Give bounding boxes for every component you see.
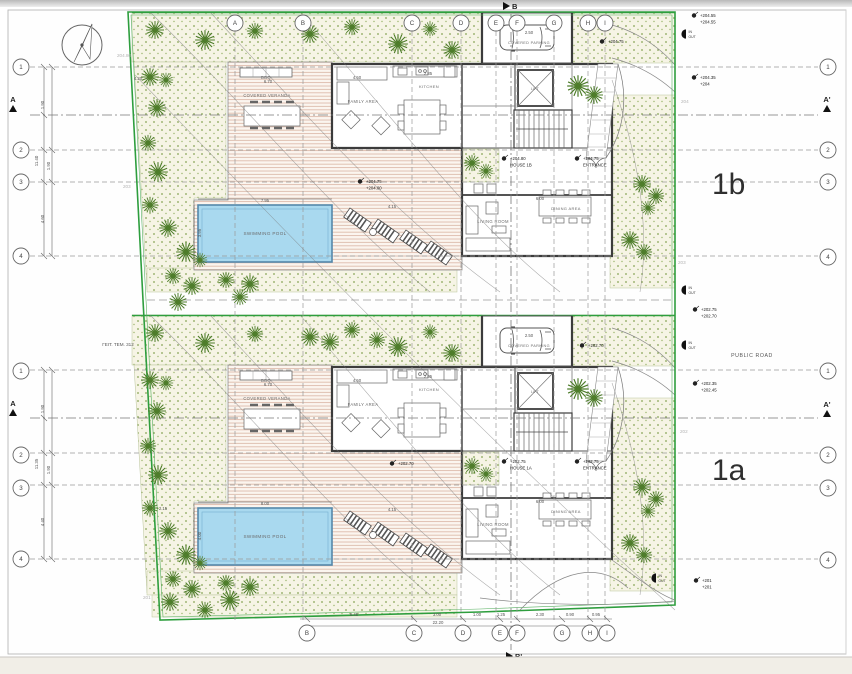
- dimension-text: 1.90: [46, 465, 51, 474]
- label-lift: LIFT: [531, 390, 539, 394]
- tree-icon: [140, 135, 156, 151]
- dimension-text: 4.60: [40, 214, 45, 223]
- level-text: +204.80: [510, 156, 526, 161]
- tree-icon: [197, 602, 213, 618]
- level-text: ENTRANCE: [583, 465, 607, 470]
- tree-icon: [621, 231, 639, 249]
- grid-bubble-label: 3: [826, 179, 830, 186]
- level-text: +204.75: [583, 156, 599, 161]
- svg-text:A': A': [823, 400, 830, 409]
- label-covered-veranda: COVERED VERANDA: [243, 93, 290, 98]
- contour-label: 201: [143, 595, 151, 600]
- grid-bubble: A: [227, 15, 243, 31]
- level-text: +204.75: [366, 179, 382, 184]
- dimension-text: 11.40: [34, 155, 39, 166]
- dimension-text: 2.50: [525, 333, 534, 338]
- dimension-text: 1.90: [40, 100, 45, 109]
- in-label: IN: [659, 574, 663, 578]
- tree-icon: [218, 272, 234, 288]
- dimension-text: 4.50: [353, 378, 362, 383]
- tree-icon: [176, 242, 196, 262]
- tree-icon: [443, 344, 461, 362]
- tree-icon: [301, 328, 319, 346]
- grid-bubble: E: [492, 625, 508, 641]
- tree-icon: [443, 41, 461, 59]
- grid-bubble-label: 1: [826, 368, 830, 375]
- dimension-text: 4.00: [197, 531, 202, 540]
- tree-icon: [140, 438, 156, 454]
- grid-bubble: I: [597, 15, 613, 31]
- grid-bubble-label: E: [498, 630, 502, 637]
- unit-1b-label: 1b: [712, 168, 745, 201]
- grid-bubble: 3: [13, 480, 29, 496]
- grid-bubble: 3: [820, 480, 836, 496]
- tree-icon: [641, 504, 655, 518]
- tree-icon: [165, 268, 181, 284]
- tree-icon: [195, 333, 215, 353]
- level-text: +202.70: [398, 461, 414, 466]
- tree-icon: [148, 162, 168, 182]
- level-text: ENTRANCE: [583, 162, 607, 167]
- in-label: IN: [689, 30, 693, 34]
- grid-bubble-label: 2: [19, 147, 23, 154]
- tree-icon: [159, 73, 173, 87]
- grid-bubble: H: [582, 625, 598, 641]
- grid-bubble-label: H: [586, 20, 590, 27]
- level-text: +204.75: [608, 39, 624, 44]
- label-covered-parking: COVERED PARKING: [508, 344, 550, 348]
- tree-icon: [423, 22, 437, 36]
- grid-bubble-label: 2: [19, 452, 23, 459]
- dimension-text: 4.50: [353, 75, 362, 80]
- neighbor-plot-label: ΓΕΙΤ. ΤΕΜ. 312: [102, 342, 134, 347]
- grid-bubble: D: [453, 15, 469, 31]
- tree-icon: [148, 465, 168, 485]
- tree-icon: [464, 155, 480, 171]
- tree-icon: [148, 99, 166, 117]
- dimension-text: 0.95: [592, 612, 601, 617]
- tree-icon: [633, 175, 651, 193]
- out-label: OUT: [689, 346, 696, 350]
- tree-icon: [585, 86, 603, 104]
- dimension-text: 4.20: [134, 76, 143, 81]
- dimension-text: 6.00: [536, 196, 545, 201]
- contour-label: 203: [678, 260, 686, 265]
- in-label: IN: [689, 341, 693, 345]
- tree-icon: [218, 575, 234, 591]
- grid-bubble-label: I: [604, 20, 606, 27]
- contour-label: 204.80: [117, 53, 131, 58]
- svg-text:B: B: [512, 2, 518, 11]
- tree-icon: [369, 332, 385, 348]
- grid-bubble-label: 3: [826, 485, 830, 492]
- tree-icon: [423, 325, 437, 339]
- grid-bubble-label: 4: [826, 557, 830, 564]
- level-text: +202.75: [510, 459, 526, 464]
- label-bbq: BBQ: [261, 378, 271, 383]
- dimension-text: 1.25: [497, 612, 506, 617]
- tree-icon: [344, 322, 360, 338]
- svg-text:A: A: [10, 95, 16, 104]
- tree-icon: [388, 337, 408, 357]
- tree-icon: [148, 402, 166, 420]
- in-label: IN: [689, 286, 693, 290]
- level-text: +201: [702, 578, 712, 583]
- grid-bubble-label: 2: [826, 147, 830, 154]
- grid-bubble: C: [406, 625, 422, 641]
- grid-bubble: 4: [820, 249, 836, 265]
- tree-icon: [193, 556, 207, 570]
- grid-bubble: 1: [13, 363, 29, 379]
- dimension-text: 2.85: [424, 71, 433, 76]
- tree-icon: [141, 68, 159, 86]
- grid-bubble: F: [509, 15, 525, 31]
- label-family-area: FAMILY AREA: [348, 99, 379, 104]
- dimension-text: 4.40: [40, 517, 45, 526]
- level-text: HOUSE 1B: [510, 162, 532, 167]
- grid-bubble-label: 1: [826, 64, 830, 71]
- grid-bubble: B: [295, 15, 311, 31]
- tree-icon: [220, 590, 240, 610]
- level-text: +202.75: [583, 459, 599, 464]
- tree-icon: [141, 371, 159, 389]
- grid-bubble: E: [488, 15, 504, 31]
- grid-bubble-label: I: [606, 630, 608, 637]
- grid-bubble-label: G: [560, 630, 565, 637]
- grid-bubble-label: 1: [19, 368, 23, 375]
- dimension-text: 3.00: [433, 612, 442, 617]
- grid-bubble: 2: [820, 447, 836, 463]
- grid-bubble: 1: [820, 59, 836, 75]
- tree-icon: [146, 21, 164, 39]
- label-covered-veranda: COVERED VERANDA: [243, 396, 290, 401]
- tree-icon: [633, 478, 651, 496]
- tree-icon: [479, 164, 493, 178]
- grid-bubble: 2: [13, 142, 29, 158]
- label-kitchen: KITCHEN: [419, 84, 439, 89]
- tree-icon: [176, 545, 196, 565]
- label-kitchen: KITCHEN: [419, 387, 439, 392]
- tree-icon: [585, 389, 603, 407]
- tree-icon: [159, 376, 173, 390]
- grid-bubble: 2: [13, 447, 29, 463]
- dimension-text: 0.90: [566, 612, 575, 617]
- window-bottom-strip: [0, 657, 852, 674]
- dimension-text: 2.30: [536, 612, 545, 617]
- grid-bubble: 1: [820, 363, 836, 379]
- level-text: HOUSE 1A: [510, 465, 532, 470]
- grid-bubble-label: 4: [826, 254, 830, 261]
- dimension-text: 2.15: [159, 506, 168, 511]
- grid-bubble: H: [580, 15, 596, 31]
- label-lift: LIFT: [531, 87, 539, 91]
- floor-plan-canvas: 1b 1a ΓΕΙΤ. ΤΕΜ. 312 PUBLIC ROAD A A' A …: [0, 0, 852, 674]
- level-text: +202.75: [701, 307, 717, 312]
- level-text: +202.70: [701, 313, 717, 318]
- level-text: +204.35: [700, 75, 716, 80]
- grid-bubble: 3: [13, 174, 29, 190]
- grid-bubble: 4: [820, 552, 836, 568]
- level-text: +204.55: [700, 13, 716, 18]
- label-family-area: FAMILY AREA: [348, 402, 379, 407]
- grid-bubble: C: [404, 15, 420, 31]
- grid-bubble-label: D: [459, 20, 464, 27]
- label-covered-parking: COVERED PARKING: [508, 41, 550, 45]
- grid-bubble-label: 4: [19, 253, 23, 260]
- tree-icon: [567, 75, 589, 97]
- level-text: +204.55: [700, 19, 716, 24]
- grid-bubble-label: E: [494, 20, 498, 27]
- grid-bubble-label: 1: [19, 64, 23, 71]
- tree-icon: [247, 23, 263, 39]
- tree-icon: [479, 467, 493, 481]
- grid-bubble: G: [546, 15, 562, 31]
- grid-bubble: 2: [820, 142, 836, 158]
- dimension-text: 3.95: [197, 228, 202, 237]
- svg-text:A': A': [823, 95, 830, 104]
- tree-icon: [641, 201, 655, 215]
- svg-text:A: A: [10, 399, 16, 408]
- grid-bubble-label: 3: [19, 179, 23, 186]
- tree-icon: [321, 333, 339, 351]
- out-label: OUT: [689, 291, 696, 295]
- window-top-edge: [0, 0, 852, 7]
- tree-icon: [567, 378, 589, 400]
- dimension-text: 8.00: [261, 501, 270, 506]
- level-text: +202.35: [701, 381, 717, 386]
- level-text: +201: [702, 584, 712, 589]
- dimension-text: 7.95: [261, 198, 270, 203]
- dimension-text: 1.90: [40, 404, 45, 413]
- contour-label: 202: [680, 429, 688, 434]
- grid-bubble-label: F: [515, 20, 519, 27]
- contour-label: 203: [123, 184, 131, 189]
- label-swimming-pool: SWIMMING POOL: [243, 231, 286, 236]
- grid-bubble-label: H: [588, 630, 592, 637]
- label-dining-area: DINING AREA: [551, 206, 581, 211]
- grid-bubble-label: 4: [19, 556, 23, 563]
- grid-bubble: I: [599, 625, 615, 641]
- tree-icon: [159, 219, 177, 237]
- grid-bubble-label: B: [301, 20, 305, 27]
- grid-bubble: D: [455, 625, 471, 641]
- tree-icon: [142, 500, 158, 516]
- dimension-text: 4.15: [388, 204, 397, 209]
- tree-icon: [165, 571, 181, 587]
- level-text: +204: [700, 81, 710, 86]
- tree-icon: [388, 34, 408, 54]
- tree-icon: [183, 580, 201, 598]
- dimension-text: 22.20: [433, 620, 444, 625]
- tree-icon: [232, 289, 248, 305]
- tree-icon: [159, 522, 177, 540]
- label-dining-area: DINING AREA: [551, 509, 581, 514]
- grid-bubble-label: F: [515, 630, 519, 637]
- grid-bubble: 3: [820, 174, 836, 190]
- grid-bubble-label: G: [552, 20, 557, 27]
- dimension-text: 2.85: [424, 374, 433, 379]
- tree-icon: [464, 458, 480, 474]
- tree-icon: [161, 593, 179, 611]
- grid-bubble-label: C: [412, 630, 417, 637]
- contour-label: 204: [681, 99, 689, 104]
- level-text: +202.45: [701, 387, 717, 392]
- grid-bubble-label: B: [305, 630, 309, 637]
- grid-bubble-label: C: [410, 20, 415, 27]
- label-bbq: BBQ: [261, 75, 271, 80]
- dimension-text: 11.35: [34, 458, 39, 469]
- dimension-text: 1.90: [46, 161, 51, 170]
- tree-icon: [193, 253, 207, 267]
- grid-bubble: 4: [13, 551, 29, 567]
- dimension-text: 6.00: [536, 499, 545, 504]
- grid-bubble-label: 2: [826, 452, 830, 459]
- tree-icon: [247, 326, 263, 342]
- tree-icon: [241, 275, 259, 293]
- dimension-text: 1.00: [473, 612, 482, 617]
- grid-bubble: 1: [13, 59, 29, 75]
- grid-bubble: 4: [13, 248, 29, 264]
- level-text: +204.00: [366, 185, 382, 190]
- grid-bubble: B: [299, 625, 315, 641]
- tree-icon: [142, 197, 158, 213]
- tree-icon: [621, 534, 639, 552]
- grid-bubble-label: 3: [19, 485, 23, 492]
- tree-icon: [195, 30, 215, 50]
- level-text: +202.70: [588, 343, 604, 348]
- label-living-room: LIVING ROOM: [477, 219, 509, 224]
- dimension-text: 2.50: [525, 30, 534, 35]
- tree-icon: [146, 324, 164, 342]
- grid-bubble: F: [509, 625, 525, 641]
- tree-icon: [636, 244, 652, 260]
- dimension-text: 6.45: [350, 612, 359, 617]
- tree-icon: [344, 19, 360, 35]
- dimension-text: 4.15: [388, 507, 397, 512]
- public-road-label: PUBLIC ROAD: [731, 353, 773, 359]
- tree-icon: [169, 293, 187, 311]
- tree-icon: [241, 578, 259, 596]
- unit-1a-label: 1a: [712, 454, 746, 487]
- tree-icon: [183, 277, 201, 295]
- out-label: OUT: [689, 35, 696, 39]
- label-living-room: LIVING ROOM: [477, 522, 509, 527]
- grid-bubble-label: D: [461, 630, 466, 637]
- grid-bubble: G: [554, 625, 570, 641]
- label-swimming-pool: SWIMMING POOL: [243, 534, 286, 539]
- out-label: OUT: [659, 579, 666, 583]
- tree-icon: [636, 547, 652, 563]
